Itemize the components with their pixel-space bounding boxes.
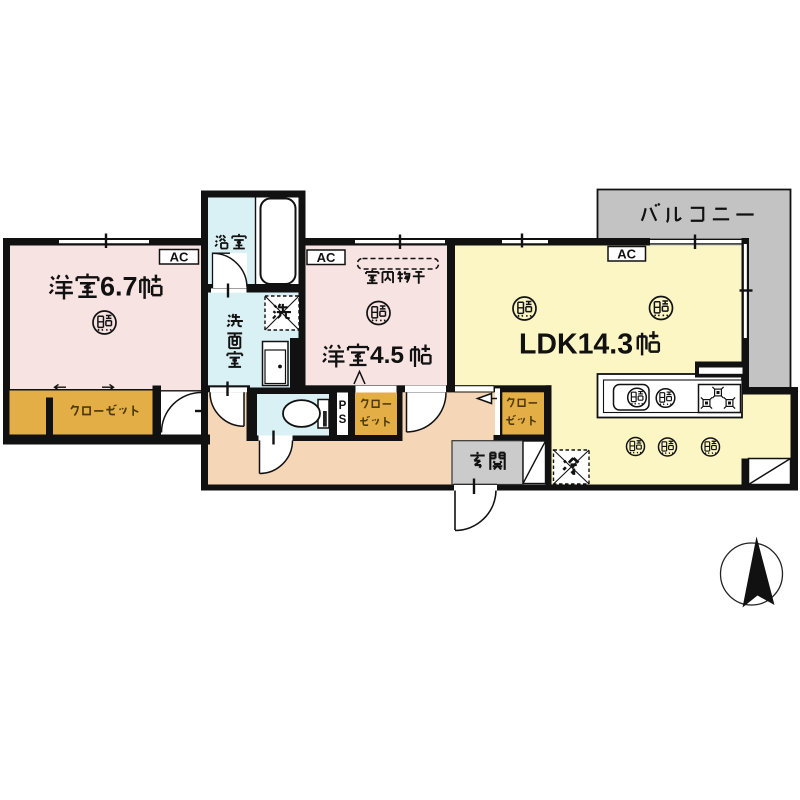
svg-text:4.5: 4.5 bbox=[370, 342, 404, 369]
svg-text:6.7: 6.7 bbox=[100, 272, 138, 302]
svg-text:S: S bbox=[339, 414, 347, 426]
svg-text:AC: AC bbox=[317, 250, 336, 265]
svg-text:P: P bbox=[339, 400, 347, 412]
svg-text:AC: AC bbox=[617, 247, 636, 262]
svg-text:LDK14.3: LDK14.3 bbox=[519, 329, 633, 361]
svg-text:AC: AC bbox=[170, 250, 189, 265]
